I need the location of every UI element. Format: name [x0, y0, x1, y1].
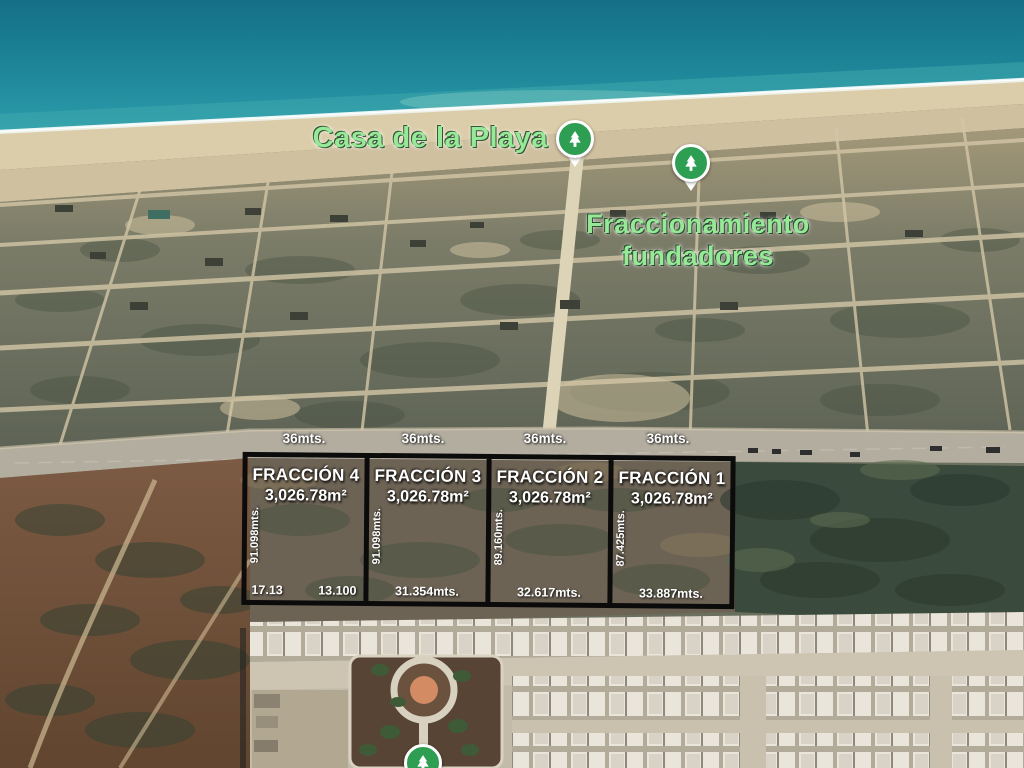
tree-icon	[566, 129, 584, 149]
parcel-name: FRACCIÓN 1	[613, 468, 730, 489]
tree-icon	[414, 753, 432, 768]
parcel-overlay: FRACCIÓN 4 3,026.78m² 91.098mts. 17.13 1…	[241, 452, 735, 609]
parcel-area: 3,026.78m²	[369, 488, 486, 507]
parcel-depth-label: 91.098mts.	[371, 508, 383, 564]
parcel-frontage-right: 13.100	[318, 584, 356, 598]
satellite-map-canvas: Casa de la Playa Fraccionamiento fundado…	[0, 0, 1024, 768]
pin-circle	[556, 120, 594, 158]
park-pin[interactable]	[404, 744, 442, 768]
parcel-area: 3,026.78m²	[613, 490, 730, 509]
pin-circle	[672, 144, 710, 182]
parcel-frontage-left: 17.13	[251, 583, 282, 597]
parcel-fraccion-1: FRACCIÓN 1 3,026.78m² 87.425mts. 33.887m…	[607, 460, 730, 604]
dark-vegetation-right	[720, 460, 1024, 625]
street-width-label-4: 36mts.	[647, 431, 690, 446]
parcel-frontage: 31.354mts.	[368, 584, 485, 599]
poi-label-fraccionamiento-fundadores[interactable]: Fraccionamiento fundadores	[558, 208, 838, 272]
parcel-area: 3,026.78m²	[491, 489, 608, 508]
parcel-name: FRACCIÓN 4	[247, 465, 364, 486]
poi-label-line1: Fraccionamiento	[558, 208, 838, 240]
fraccionamiento-fundadores-pin[interactable]	[672, 144, 710, 194]
red-scrub-left	[0, 458, 260, 768]
parcel-name: FRACCIÓN 2	[491, 467, 608, 488]
parcel-fraccion-3: FRACCIÓN 3 3,026.78m² 91.098mts. 31.354m…	[363, 458, 486, 602]
parcel-area: 3,026.78m²	[247, 487, 364, 506]
poi-label-casa-de-la-playa[interactable]: Casa de la Playa	[280, 122, 548, 155]
satellite-terrain	[0, 0, 1024, 768]
parcel-name: FRACCIÓN 3	[369, 466, 486, 487]
casa-de-la-playa-pin[interactable]	[556, 120, 594, 170]
parcel-depth-label: 89.160mts.	[493, 509, 505, 565]
pin-circle	[404, 744, 442, 768]
parcel-depth-label: 87.425mts.	[615, 510, 627, 566]
poi-label-line2: fundadores	[558, 240, 838, 272]
parcel-depth-label: 91.098mts.	[249, 507, 261, 563]
street-width-label-1: 36mts.	[283, 431, 326, 446]
street-width-label-3: 36mts.	[524, 431, 567, 446]
parcel-fraccion-2: FRACCIÓN 2 3,026.78m² 89.160mts. 32.617m…	[485, 459, 608, 603]
parcel-frontage: 32.617mts.	[490, 585, 607, 600]
tree-icon	[682, 153, 700, 173]
residential-area	[240, 612, 1024, 768]
street-width-label-2: 36mts.	[402, 431, 445, 446]
parcel-frontage: 33.887mts.	[612, 586, 729, 601]
parcel-fraccion-4: FRACCIÓN 4 3,026.78m² 91.098mts. 17.13 1…	[246, 457, 364, 601]
